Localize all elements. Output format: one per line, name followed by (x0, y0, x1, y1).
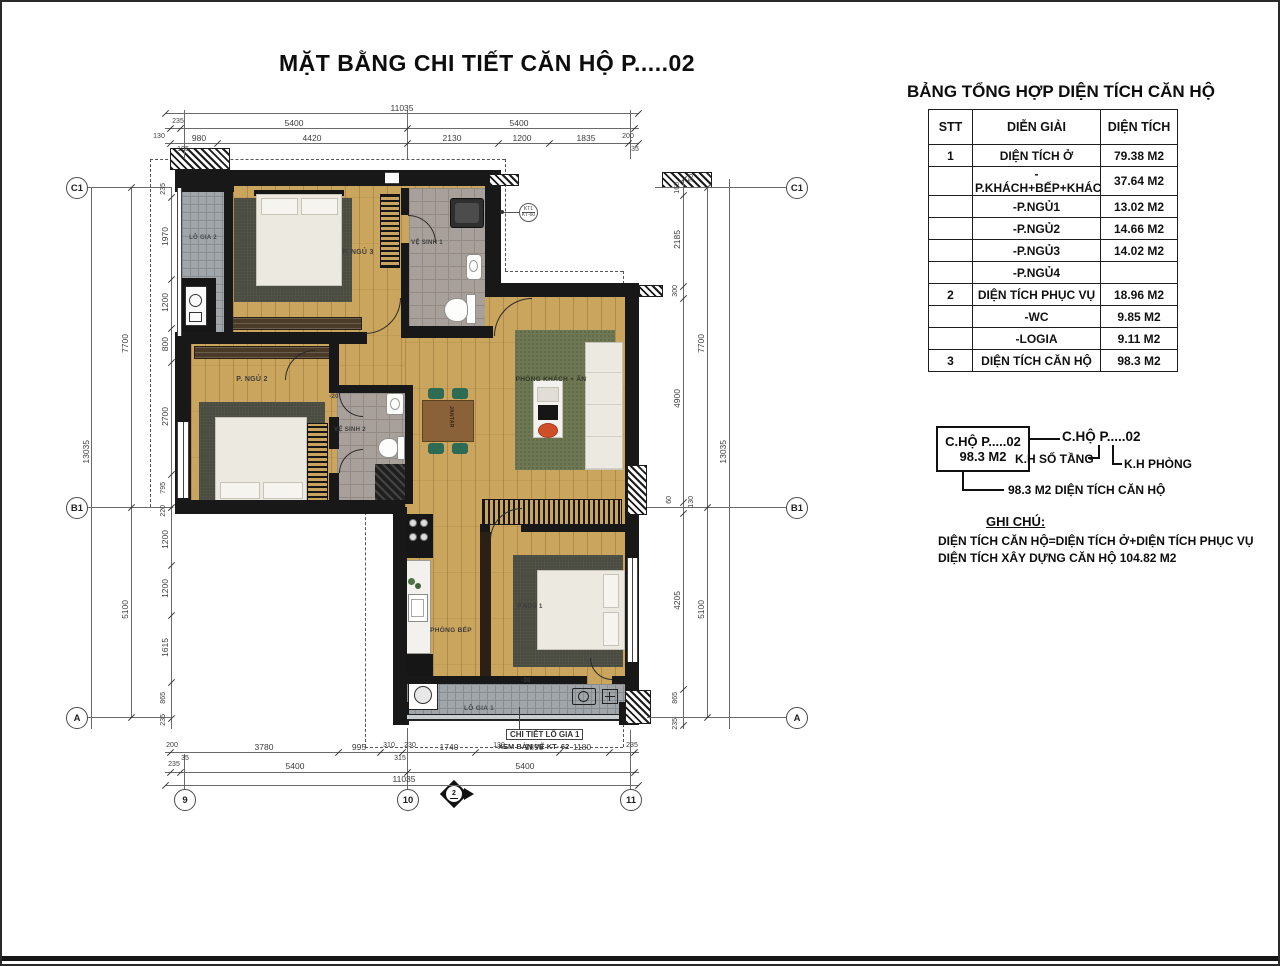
dim-label: 160 (674, 182, 681, 194)
decor-dish (538, 423, 558, 438)
cabinet-bedroom3 (380, 194, 400, 268)
wall (565, 676, 587, 684)
dim-label: 35 (181, 755, 189, 762)
wall (393, 507, 407, 725)
dim-label: 1200 (160, 293, 170, 312)
cell-area: 79.38 M2 (1101, 145, 1178, 167)
cell-area: 14.02 M2 (1101, 240, 1178, 262)
burner (409, 519, 417, 527)
toilet-tank-bath2 (397, 436, 405, 460)
cell-stt: 2 (929, 284, 973, 306)
table-row: -WC9.85 M2 (929, 306, 1178, 328)
burner (420, 519, 428, 527)
dim-label: 1180 (573, 742, 591, 752)
area-table: STT DIỄN GIẢI DIỆN TÍCH 1DIỆN TÍCH Ở79.3… (928, 109, 1178, 372)
toilet-bowl-bath2 (378, 438, 398, 458)
room-code-label: K.H PHÒNG (1124, 457, 1192, 471)
pillow (220, 482, 260, 499)
wall (175, 500, 405, 514)
grid-bubble-right-a: A (786, 707, 808, 729)
grid-bubble-left-b1: B1 (66, 497, 88, 519)
dim-line (165, 113, 639, 114)
callout-dot (500, 210, 504, 214)
table-row: -P.NGỦ314.02 M2 (929, 240, 1178, 262)
room-label-bedroom2: P. NGỦ 2 (236, 376, 267, 383)
callout-bottom-text: KT-60 (522, 212, 535, 218)
section-number: 2 (452, 790, 456, 797)
cell-stt (929, 240, 973, 262)
tick (635, 110, 642, 117)
cell-stt (929, 218, 973, 240)
dim-label: 315 (394, 755, 406, 762)
dim-label: 795 (160, 482, 167, 494)
ac-box-icon (189, 312, 202, 322)
boundary-dash (365, 507, 366, 747)
dim-label: 980 (192, 133, 206, 143)
hatch-block (625, 690, 651, 724)
dim-label: 105 (177, 146, 189, 153)
legend-connector (962, 472, 964, 489)
dim-label: 1200 (513, 133, 532, 143)
callout-leader (502, 212, 519, 213)
sheet-frame-bottom (2, 956, 1280, 961)
unit-box-code: C.HỘ P.....02 (945, 434, 1021, 449)
legend-tick (1112, 445, 1114, 465)
dim-label: 7700 (696, 334, 706, 353)
unit-code-text: C.HỘ P.....02 (1062, 429, 1141, 444)
dim-label: 235 (160, 714, 167, 726)
dim-label: 50 (688, 174, 695, 182)
sofa (585, 342, 623, 470)
cell-area: 9.85 M2 (1101, 306, 1178, 328)
grid-bubble-right-c1: C1 (786, 177, 808, 199)
wall (480, 524, 490, 532)
plus-icon (609, 692, 610, 701)
cell-label: -P.KHÁCH+BẾP+KHÁC (973, 167, 1101, 196)
bathtub-basin (455, 203, 479, 223)
chair (428, 388, 444, 399)
table-row: -P.KHÁCH+BẾP+KHÁC37.64 M2 (929, 167, 1178, 196)
dim-label: 800 (160, 337, 170, 351)
table-row: -P.NGỦ113.02 M2 (929, 196, 1178, 218)
room-label-bath2: VỆ SINH 2 (334, 427, 366, 433)
cell-stt: 3 (929, 350, 973, 372)
dim-line (683, 179, 684, 729)
boundary-dash (505, 271, 623, 272)
dim-label: 5400 (516, 761, 535, 771)
wall (405, 676, 565, 684)
room-label-living: PHÒNG KHÁCH + ĂN (516, 376, 587, 383)
bath2-cabinet (375, 464, 405, 500)
tray (537, 387, 559, 402)
dim-label: 1200 (160, 530, 170, 549)
dim-line (165, 143, 639, 144)
dim-label: 2700 (160, 407, 170, 426)
dim-label: 200 (166, 742, 178, 749)
dim-line (131, 187, 132, 717)
dim-label: 13035 (81, 440, 91, 464)
area-note: 98.3 M2 DIỆN TÍCH CĂN HỘ (1008, 483, 1165, 497)
room-label-bedroom1: P.NGỦ 1 (517, 604, 542, 610)
dim-label: 130 (153, 133, 165, 140)
cell-label: -P.NGỦ1 (973, 196, 1101, 218)
dim-label: 11035 (390, 103, 413, 113)
wall (329, 385, 413, 393)
dim-line (707, 187, 708, 717)
dim-label: 130 (493, 742, 505, 749)
wardrobe-bedroom3 (232, 317, 362, 330)
pillow (603, 612, 619, 646)
cell-label: -P.NGỦ3 (973, 240, 1101, 262)
cell-stt (929, 262, 973, 284)
note-line1: DIỆN TÍCH CĂN HỘ=DIỆN TÍCH Ở+DIỆN TÍCH P… (938, 534, 1254, 548)
sink-basin (411, 599, 424, 617)
dim-line (91, 187, 92, 729)
cell-label: DIỆN TÍCH CĂN HỘ (973, 350, 1101, 372)
table-row: 2DIỆN TÍCH PHỤC VỤ18.96 M2 (929, 284, 1178, 306)
chair (452, 388, 468, 399)
section-divider (450, 798, 458, 799)
grid-bubble-9: 9 (174, 789, 196, 811)
cell-stt: 1 (929, 145, 973, 167)
table-row: -LOGIA9.11 M2 (929, 328, 1178, 350)
dim-label: 7700 (120, 334, 130, 353)
dim-label: 235 (168, 761, 180, 768)
dim-label: 1740 (440, 742, 459, 752)
dim-label: 235 (160, 183, 167, 195)
section-marker-arrow (464, 788, 474, 800)
dim-label: 4900 (672, 389, 682, 408)
dim-line (729, 179, 730, 729)
dim-label: 230 (404, 742, 416, 749)
cell-area: 13.02 M2 (1101, 196, 1178, 218)
cell-stt (929, 328, 973, 350)
toilet-bowl-bath1 (444, 298, 468, 322)
dim-label: 4205 (672, 591, 682, 610)
burner (420, 533, 428, 541)
wall (401, 326, 493, 338)
cell-area: 14.66 M2 (1101, 218, 1178, 240)
wall (329, 417, 339, 449)
chair (452, 443, 468, 454)
cell-label: -WC (973, 306, 1101, 328)
cell-stt (929, 167, 973, 196)
grid-bubble-left-c1: C1 (66, 177, 88, 199)
sink-bowl (390, 398, 400, 410)
room-label-balcony2: LÔ GIA 2 (189, 235, 217, 241)
note-line2: DIỆN TÍCH XÂY DỰNG CĂN HỘ 104.82 M2 (938, 551, 1176, 565)
pillow (263, 482, 303, 499)
balcony1-rail (407, 714, 625, 721)
axis-stub (630, 730, 631, 789)
hatch-block (489, 174, 519, 186)
dim-label: 310 (383, 742, 395, 749)
dim-label: 235 (672, 718, 679, 730)
cell-area: 18.96 M2 (1101, 284, 1178, 306)
dim-label: 60 (666, 496, 673, 504)
detail-callout-bubble: KT1 KT-60 (519, 203, 538, 222)
cell-area (1101, 262, 1178, 284)
legend-connector (1030, 438, 1060, 440)
dining-table-brand: JANTAR (448, 406, 454, 428)
table-header-row: STT DIỄN GIẢI DIỆN TÍCH (929, 110, 1178, 145)
legend-connector (962, 489, 1004, 491)
wall (191, 332, 367, 344)
hatch-column-entry (627, 465, 647, 515)
wall (401, 243, 409, 338)
dim-label: 865 (672, 692, 679, 704)
window-bedroom2 (177, 422, 189, 498)
table-row: -P.NGỦ4 (929, 262, 1178, 284)
detail-leader (519, 707, 520, 729)
cell-label: -P.NGỦ4 (973, 262, 1101, 284)
col-header-stt: STT (929, 110, 973, 145)
dim-label: 1200 (160, 579, 170, 598)
balcony2-rail (177, 188, 182, 336)
wall (224, 186, 233, 336)
notes-title: GHI CHÚ: (986, 514, 1045, 529)
room-label-bedroom3: P. NGỦ 3 (342, 249, 373, 256)
dim-label: 995 (352, 742, 366, 752)
plant (408, 578, 415, 585)
dim-label: 5400 (510, 118, 529, 128)
dim-label: 300 (672, 285, 679, 297)
axis-stub (407, 110, 408, 159)
hatch-block (639, 285, 663, 297)
hatch-block (662, 172, 712, 188)
dim-label: 1615 (160, 638, 170, 657)
wall (521, 524, 625, 532)
window-bedroom1 (627, 558, 638, 662)
grid-bubble-right-b1: B1 (786, 497, 808, 519)
dim-label: 13035 (718, 440, 728, 464)
pillow (603, 574, 619, 608)
wall (612, 676, 625, 684)
detail-note-line1: CHI TIẾT LÔ GIA 1 (506, 729, 583, 740)
page-title: MẶT BẰNG CHI TIẾT CĂN HỘ P.....02 (279, 50, 695, 77)
cell-label: -P.NGỦ2 (973, 218, 1101, 240)
tablet (538, 405, 558, 420)
section-marker-bubble: 2 (446, 786, 462, 802)
sink-bowl (469, 260, 478, 272)
dim-label: 11035 (392, 774, 415, 784)
pillow (301, 198, 338, 215)
cell-label: -LOGIA (973, 328, 1101, 350)
burner (409, 533, 417, 541)
dim-label: 4420 (303, 133, 322, 143)
dim-label: 1890 (525, 742, 544, 752)
table-title: BẢNG TỔNG HỢP DIỆN TÍCH CĂN HỘ (907, 82, 1215, 102)
wall (485, 170, 501, 297)
dim-label: 200 (622, 133, 634, 140)
window-mullion (632, 558, 633, 662)
unit-box-area: 98.3 M2 (960, 449, 1007, 464)
level-mark-balcony1: -30 (521, 678, 531, 684)
axis-line (647, 717, 786, 718)
floor-code-label: K.H SỐ TẦNG (1015, 452, 1094, 466)
ac-fan-icon (189, 294, 202, 307)
col-header-dien-giai: DIỄN GIẢI (973, 110, 1101, 145)
wall (405, 385, 413, 504)
dim-label: 130 (688, 496, 695, 508)
dim-label: 220 (160, 505, 167, 517)
room-label-kitchen: PHÒNG BẾP (430, 627, 472, 634)
dim-label: 235 (626, 742, 638, 749)
cell-area: 9.11 M2 (1101, 328, 1178, 350)
washer-drum-icon (414, 686, 432, 704)
wall (485, 283, 639, 297)
ac-fan-icon (578, 691, 589, 702)
wall (401, 188, 409, 215)
plant (415, 583, 421, 589)
grid-bubble-left-a: A (66, 707, 88, 729)
tick (635, 782, 642, 789)
chair (428, 443, 444, 454)
cell-area: 37.64 M2 (1101, 167, 1178, 196)
dim-label: 1970 (160, 227, 170, 246)
cell-stt (929, 196, 973, 218)
legend-tick (1112, 463, 1122, 465)
grid-bubble-10: 10 (397, 789, 419, 811)
dim-label: 2185 (672, 230, 682, 249)
wall-wood-bedroom1 (480, 532, 491, 682)
drawing-sheet: MẶT BẰNG CHI TIẾT CĂN HỘ P.....02 JANTAR (0, 0, 1280, 966)
dim-label: 2130 (443, 133, 462, 143)
axis-line (647, 507, 786, 508)
table-row: 1DIỆN TÍCH Ở79.38 M2 (929, 145, 1178, 167)
window-mullion (183, 422, 184, 498)
plus-icon (605, 696, 615, 697)
dim-label: 35 (631, 146, 639, 153)
room-label-balcony1: LÔ GIA 1 (464, 705, 494, 712)
boundary-dash (150, 159, 151, 507)
cell-label: DIỆN TÍCH PHỤC VỤ (973, 284, 1101, 306)
wall (329, 344, 339, 387)
dim-label: 235 (172, 118, 184, 125)
grid-bubble-11: 11 (620, 789, 642, 811)
wall (224, 170, 501, 186)
level-mark-bath2: -20 (329, 394, 339, 400)
dim-label: 5400 (286, 761, 305, 771)
dim-label: 5100 (120, 600, 130, 619)
vent-window (385, 172, 399, 184)
dim-line (165, 772, 639, 773)
dim-label: 865 (160, 692, 167, 704)
dim-line (165, 128, 639, 129)
table-row: -P.NGỦ214.66 M2 (929, 218, 1178, 240)
dim-line (171, 187, 172, 729)
dim-label: 3780 (255, 742, 274, 752)
dim-label: 1835 (577, 133, 596, 143)
cell-label: DIỆN TÍCH Ở (973, 145, 1101, 167)
col-header-dien-tich: DIỆN TÍCH (1101, 110, 1178, 145)
wall (329, 473, 339, 504)
dim-label: 5100 (696, 600, 706, 619)
table-row: 3DIỆN TÍCH CĂN HỘ98.3 M2 (929, 350, 1178, 372)
cell-stt (929, 306, 973, 328)
cell-area: 98.3 M2 (1101, 350, 1178, 372)
room-label-bath1: VỆ SINH 1 (411, 240, 443, 246)
cabinet-bedroom2 (307, 423, 328, 504)
dim-line (165, 785, 639, 786)
dim-label: 5400 (285, 118, 304, 128)
pillow (261, 198, 298, 215)
